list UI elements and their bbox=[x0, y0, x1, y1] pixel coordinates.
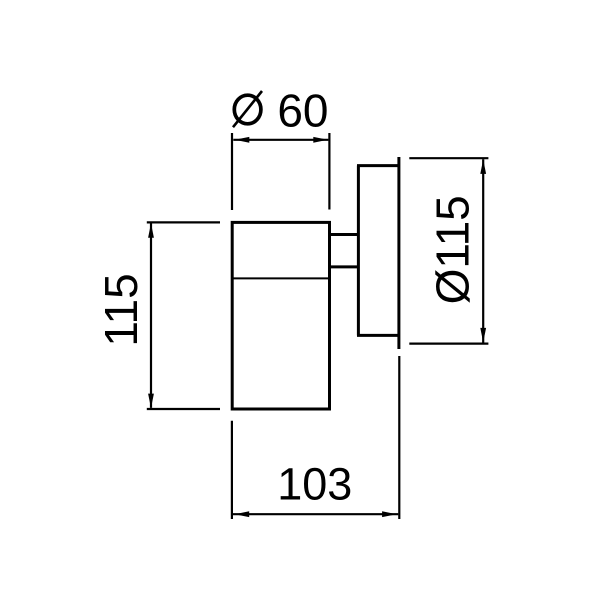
svg-text:Ø115: Ø115 bbox=[426, 195, 478, 304]
svg-text:60: 60 bbox=[277, 84, 328, 136]
svg-text:103: 103 bbox=[277, 458, 352, 509]
svg-text:115: 115 bbox=[95, 273, 147, 346]
